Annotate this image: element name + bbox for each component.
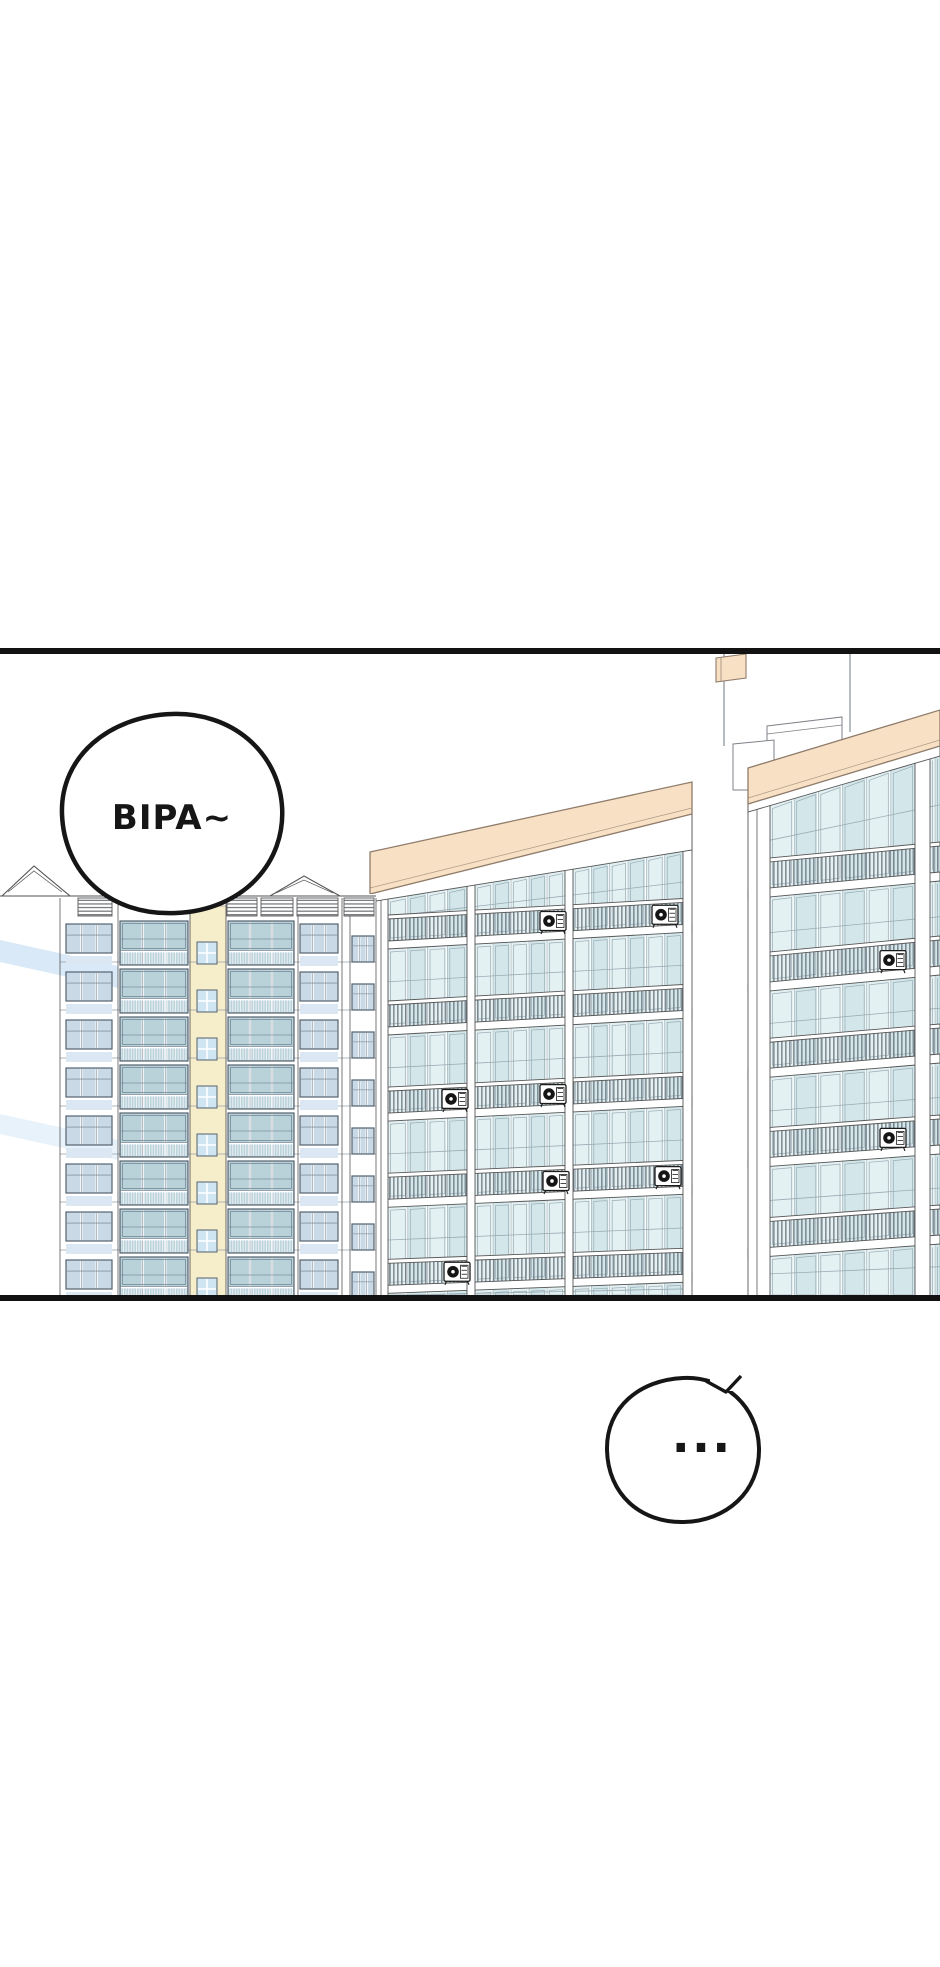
ac-unit-icon [543, 1171, 569, 1194]
ac-unit-icon [442, 1089, 468, 1112]
speech-bubble-ellipsis: ... [607, 1371, 759, 1522]
bipa-sound-text: BIPA~ [112, 798, 232, 838]
speech-bubble-bipa: BIPA~ [62, 714, 282, 913]
ac-unit-icon [652, 905, 678, 928]
ac-unit-icon [540, 911, 566, 934]
panel-bottom-border [0, 1295, 940, 1301]
middle-apartment-building [370, 782, 692, 1298]
ac-unit-icon [540, 1085, 566, 1108]
comic-page: BIPA~ ... [0, 0, 940, 1967]
ac-unit-icon [880, 1128, 906, 1151]
left-apartment-building [0, 866, 376, 1302]
right-apartment-building [748, 710, 940, 1298]
panel-top-border [0, 648, 940, 654]
ac-unit-icon [655, 1167, 681, 1190]
ellipsis-text: ... [672, 1408, 733, 1464]
ac-unit-icon [444, 1262, 470, 1285]
ac-unit-icon [880, 951, 906, 974]
comic-panel: BIPA~ [0, 648, 940, 1302]
